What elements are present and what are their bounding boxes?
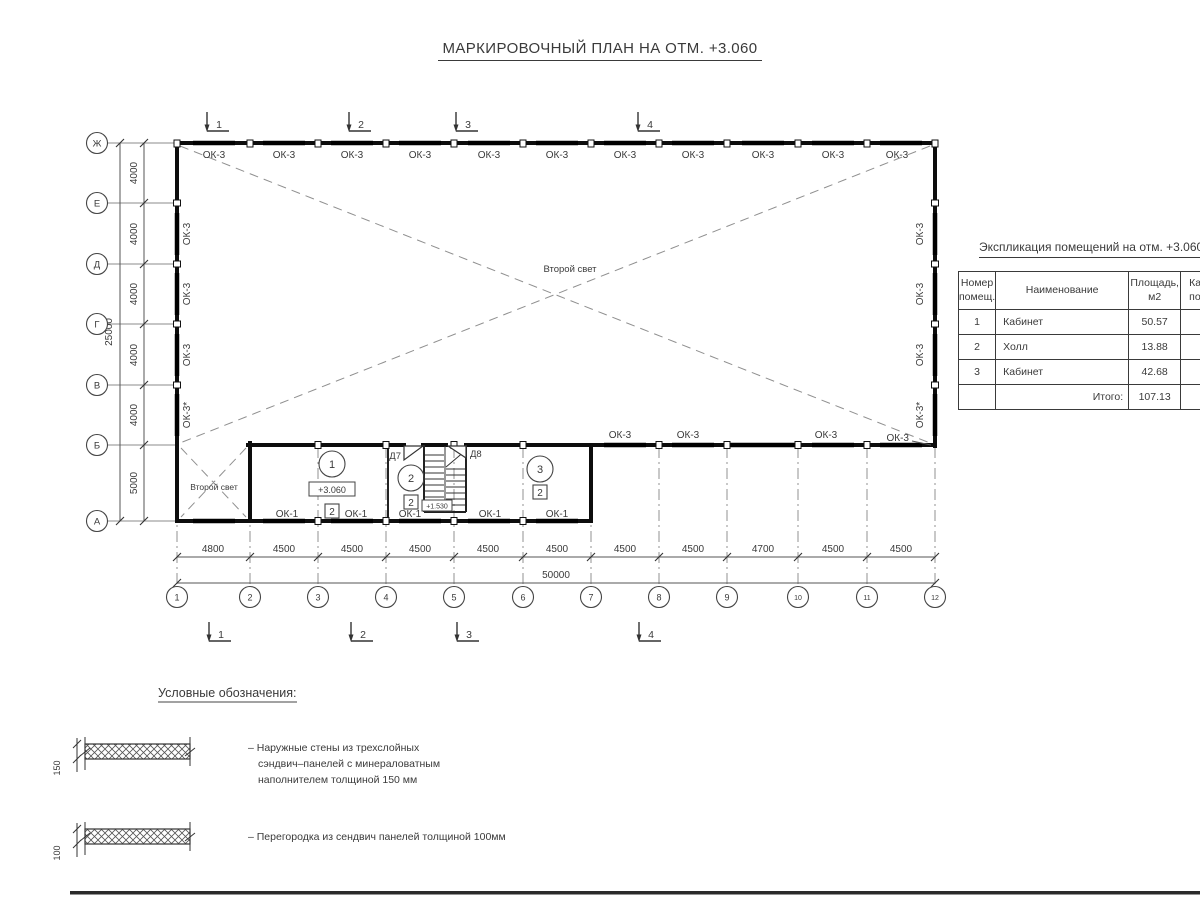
- window-mark-ok3: ОК-3: [915, 282, 926, 305]
- legend-item-text: наполнителем толщиной 150 мм: [258, 774, 417, 786]
- axis-label: Ж: [93, 139, 102, 150]
- dim-label: 4500: [546, 544, 569, 555]
- window-mark-ok3: ОК-3: [341, 150, 364, 161]
- dim-label: 4800: [202, 544, 225, 555]
- left-dimensions: 4000 4000 4000 4000 4000 5000 25000: [104, 161, 140, 494]
- table-total-row: Итого: 107.13: [959, 385, 1200, 410]
- axis-label: 3: [315, 593, 320, 603]
- axis-label: 2: [247, 593, 252, 603]
- window-mark-ok3-star: ОК-3*: [915, 402, 926, 428]
- elevation-mark: +3.060: [318, 485, 346, 495]
- total-value: 107.13: [1129, 385, 1181, 410]
- axis-column-ticks: [174, 140, 939, 525]
- dim-label: 4000: [129, 282, 140, 305]
- door-label-d7: Д7: [389, 451, 401, 462]
- cell-room-number: 2: [959, 335, 996, 360]
- header-category: Ка по: [1181, 272, 1200, 310]
- dim-label: 4500: [682, 544, 705, 555]
- cell-room-number: 1: [959, 310, 996, 335]
- cell-room-area: 42.68: [1129, 360, 1181, 385]
- table-header-row: Номер помещ. Наименование Площадь, м2 Ка…: [959, 272, 1200, 310]
- cell-room-name: Кабинет: [996, 360, 1129, 385]
- window-segments: [177, 143, 935, 521]
- dim-label: 4500: [890, 544, 913, 555]
- window-mark-ok3: ОК-3: [182, 222, 193, 245]
- cell-room-category: [1181, 335, 1200, 360]
- room-schedule: Экспликация помещений на отм. +3.060 Ном…: [958, 238, 1200, 410]
- section-markers: 1 2 3 4 1 2 3 4: [205, 112, 662, 642]
- cell-room-area: 13.88: [1129, 335, 1181, 360]
- category-value: 2: [537, 488, 543, 499]
- cell-room-name: Кабинет: [996, 310, 1129, 335]
- door-swing-d7: [404, 446, 423, 460]
- bottom-dimensions: 4800 4500 4500 4500 4500 4500 4500 4500 …: [202, 544, 913, 581]
- dim-label: 4000: [129, 161, 140, 184]
- room-number: 2: [408, 473, 414, 485]
- axis-label: 12: [931, 595, 939, 602]
- axis-bubble-labels-cols: 1 2 3 4 5 6 7 8 9 10 11 12: [174, 593, 939, 603]
- legend-item-text: сэндвич–панелей с минераловатным: [258, 758, 440, 770]
- header-line: Площадь,: [1129, 277, 1180, 290]
- window-mark-ok3-star: ОК-3*: [182, 402, 193, 428]
- axis-label: 4: [383, 593, 388, 603]
- dim-label: 4500: [273, 544, 296, 555]
- total-label: Итого:: [996, 385, 1129, 410]
- dim-label: 4000: [129, 222, 140, 245]
- legend-wall-symbol-150: [85, 744, 190, 759]
- section-number: 2: [358, 119, 364, 131]
- cell-room-category: [1181, 310, 1200, 335]
- window-mark-ok3: ОК-3: [409, 150, 432, 161]
- section-number: 4: [648, 629, 654, 641]
- axis-label: Г: [94, 320, 99, 331]
- dim-label: 5000: [129, 471, 140, 494]
- door-label-d8: Д8: [470, 449, 482, 460]
- floor-plan-svg: Второй свет Второй свет +1.530 Д7 Д8 ОК-…: [0, 0, 1200, 900]
- sheet-frame-line: [70, 891, 1200, 895]
- axis-label: 8: [656, 593, 661, 603]
- section-number: 3: [465, 119, 471, 131]
- exterior-walls: [177, 143, 935, 521]
- dim-label: 4700: [752, 544, 775, 555]
- window-mark-ok3: ОК-3: [822, 150, 845, 161]
- void-label: Второй свет: [190, 482, 238, 492]
- cell-room-area: 50.57: [1129, 310, 1181, 335]
- window-mark-ok1: ОК-1: [399, 509, 422, 520]
- window-mark-ok3: ОК-3: [182, 282, 193, 305]
- stair-elevation-label: +1.530: [426, 504, 448, 511]
- dim-label: 4500: [341, 544, 364, 555]
- table-row: 3 Кабинет 42.68: [959, 360, 1200, 385]
- axis-label: 5: [451, 593, 456, 603]
- table-row: 1 Кабинет 50.57: [959, 310, 1200, 335]
- axis-label: А: [94, 517, 101, 528]
- cell-room-category: [1181, 360, 1200, 385]
- cell-empty: [959, 385, 996, 410]
- drawing-sheet: МАРКИРОВОЧНЫЙ ПЛАН НА ОТМ. +3.060 Второй…: [0, 0, 1200, 900]
- window-mark-ok3: ОК-3: [478, 150, 501, 161]
- window-mark-ok3: ОК-3: [677, 430, 700, 441]
- axis-label: Б: [94, 441, 100, 452]
- axis-label: Е: [94, 199, 100, 210]
- dim-label: 4500: [477, 544, 500, 555]
- legend-wall-symbol-100: [85, 829, 190, 844]
- table-row: 2 Холл 13.88: [959, 335, 1200, 360]
- legend-thickness-label: 150: [52, 760, 62, 775]
- dim-total-label: 50000: [542, 570, 570, 581]
- axis-label: 9: [724, 593, 729, 603]
- header-area: Площадь, м2: [1129, 272, 1181, 310]
- section-arrowheads: [205, 125, 642, 643]
- window-mark-ok3: ОК-3: [273, 150, 296, 161]
- cell-room-name: Холл: [996, 335, 1129, 360]
- window-marks-top: ОК-3 ОК-3 ОК-3 ОК-3 ОК-3 ОК-3 ОК-3 ОК-3 …: [203, 150, 909, 161]
- legend: Условные обозначения: 150 – Наружные сте…: [52, 686, 506, 861]
- dim-label: 4000: [129, 343, 140, 366]
- header-name: Наименование: [996, 272, 1129, 310]
- room-schedule-table: Номер помещ. Наименование Площадь, м2 Ка…: [958, 271, 1200, 410]
- door-swing-d8: [448, 446, 466, 458]
- room-schedule-title: Экспликация помещений на отм. +3.060: [979, 240, 1200, 258]
- category-value: 2: [408, 498, 414, 509]
- room-number: 1: [329, 459, 335, 471]
- window-mark-ok3: ОК-3: [682, 150, 705, 161]
- window-mark-ok3: ОК-3: [752, 150, 775, 161]
- dim-label: 4000: [129, 403, 140, 426]
- void-label: Второй свет: [543, 264, 597, 275]
- window-mark-ok1: ОК-1: [546, 509, 569, 520]
- cell-room-number: 3: [959, 360, 996, 385]
- axis-label: Д: [94, 260, 101, 271]
- window-mark-ok3: ОК-3: [915, 222, 926, 245]
- header-line: по: [1181, 291, 1200, 304]
- header-line: Ка: [1181, 277, 1200, 290]
- axis-label: 1: [174, 593, 179, 603]
- void-diagonals: [180, 146, 930, 517]
- axis-label: 6: [520, 593, 525, 603]
- dim-label: 4500: [614, 544, 637, 555]
- legend-item-text: – Наружные стены из трехслойных: [248, 742, 420, 754]
- window-mark-ok3: ОК-3: [609, 430, 632, 441]
- header-line: Номер: [959, 277, 995, 290]
- axis-label: 10: [794, 595, 802, 602]
- cell-empty: [1181, 385, 1200, 410]
- header-line: помещ.: [959, 291, 995, 304]
- legend-item-text: – Перегородка из сендвич панелей толщино…: [248, 831, 506, 843]
- dim-label: 4500: [409, 544, 432, 555]
- section-number: 2: [360, 629, 366, 641]
- section-number: 1: [216, 119, 222, 131]
- window-mark-ok3: ОК-3: [546, 150, 569, 161]
- section-number: 4: [647, 119, 653, 131]
- legend-title: Условные обозначения:: [158, 686, 297, 700]
- dimension-lines: [120, 143, 935, 583]
- window-mark-ok3: ОК-3: [203, 150, 226, 161]
- axis-bubbles-cols: [167, 587, 946, 608]
- window-mark-ok1: ОК-1: [479, 509, 502, 520]
- axis-label: 11: [863, 595, 870, 602]
- axis-label: В: [94, 381, 100, 392]
- header-room-number: Номер помещ.: [959, 272, 996, 310]
- window-mark-ok3: ОК-3: [887, 433, 910, 444]
- window-mark-ok3: ОК-3: [815, 430, 838, 441]
- category-value: 2: [329, 507, 335, 518]
- header-line: м2: [1129, 291, 1180, 304]
- legend-thickness-label: 100: [52, 845, 62, 860]
- grid-lines-horizontal: [107, 143, 177, 521]
- window-mark-ok3: ОК-3: [886, 150, 909, 161]
- section-number: 1: [218, 629, 224, 641]
- window-mark-ok3: ОК-3: [614, 150, 637, 161]
- window-mark-ok3: ОК-3: [915, 343, 926, 366]
- room-number: 3: [537, 464, 543, 476]
- axis-bubbles-rows: [87, 133, 108, 532]
- section-number: 3: [466, 629, 472, 641]
- window-mark-ok1: ОК-1: [345, 509, 368, 520]
- dim-label: 4500: [822, 544, 845, 555]
- window-mark-ok1: ОК-1: [276, 509, 299, 520]
- axis-label: 7: [588, 593, 593, 603]
- window-mark-ok3: ОК-3: [182, 343, 193, 366]
